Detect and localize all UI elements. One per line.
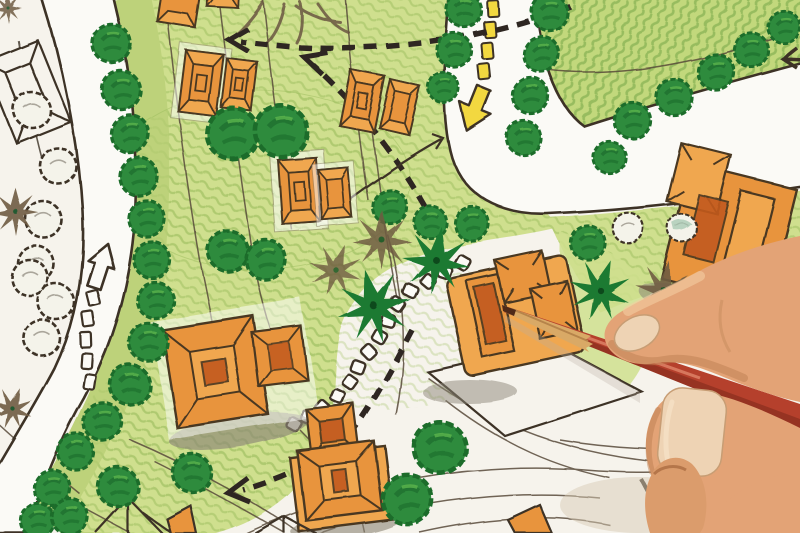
site-plan-photo [0, 0, 800, 533]
building-b2 [311, 161, 358, 227]
site-plan-canvas [0, 0, 800, 533]
building-stub-2 [207, 0, 241, 7]
building-a2 [221, 58, 257, 111]
